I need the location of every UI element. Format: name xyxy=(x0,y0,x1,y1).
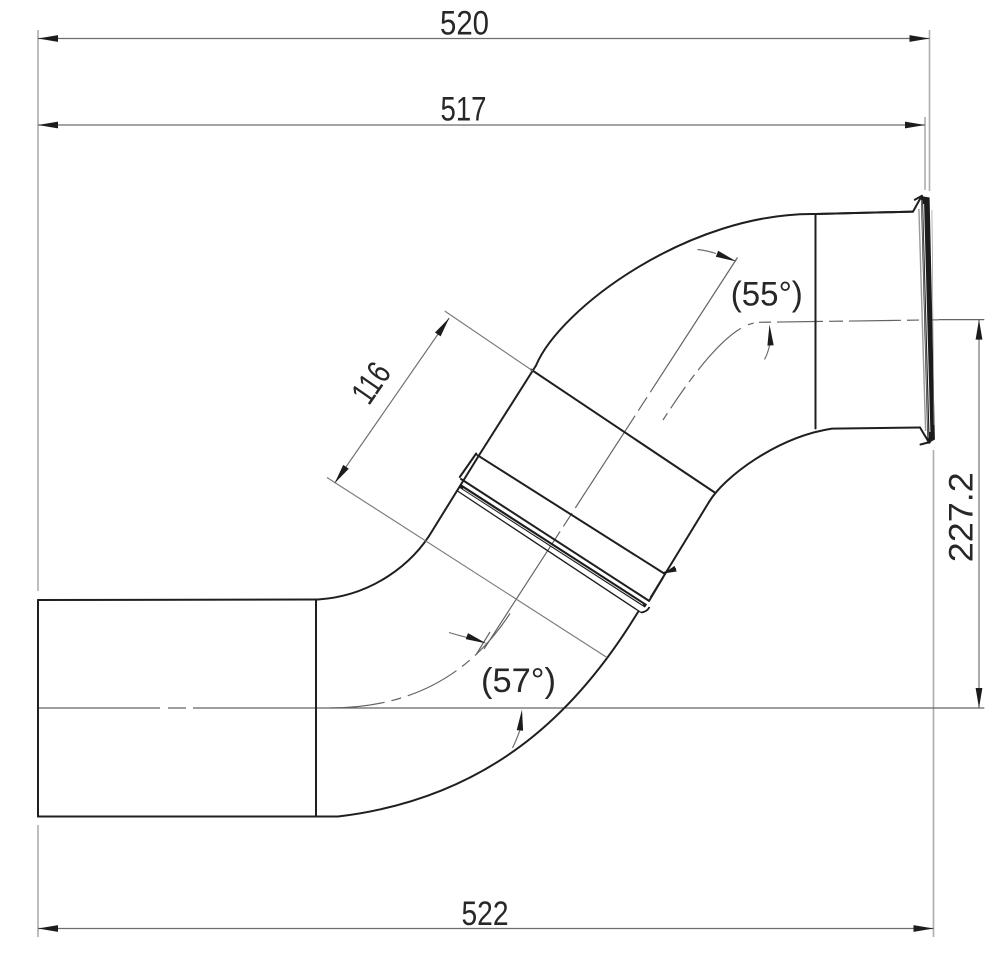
svg-text:520: 520 xyxy=(440,5,489,43)
svg-text:517: 517 xyxy=(441,91,487,129)
svg-text:(55°): (55°) xyxy=(731,276,803,314)
svg-text:522: 522 xyxy=(462,895,509,933)
svg-text:(57°): (57°) xyxy=(481,662,556,700)
svg-text:227.2: 227.2 xyxy=(943,472,981,562)
